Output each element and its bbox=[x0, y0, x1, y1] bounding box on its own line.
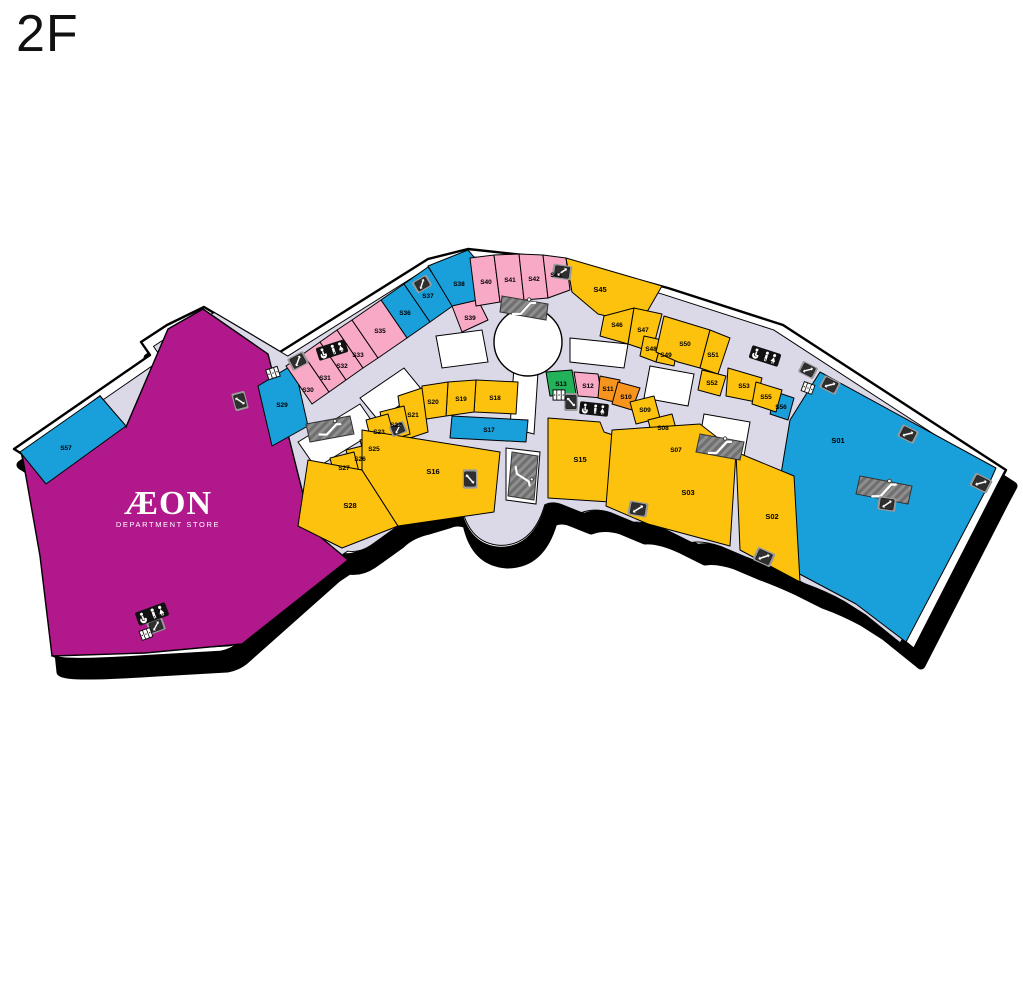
anchor-store-name: ÆON bbox=[124, 485, 212, 522]
center-court bbox=[494, 308, 562, 376]
escalator-icon bbox=[508, 452, 538, 500]
elevator-icon bbox=[463, 469, 477, 488]
unit-s19[interactable] bbox=[446, 380, 476, 416]
elevator-icon bbox=[564, 393, 578, 411]
anchor-store-subtitle: DEPARTMENT STORE bbox=[116, 520, 220, 529]
lockers-icon bbox=[553, 390, 565, 400]
floor-map: ÆON DEPARTMENT STORE bbox=[0, 0, 1023, 1000]
vacant-unit bbox=[436, 330, 488, 368]
unit-s12[interactable] bbox=[574, 372, 602, 398]
mall-floor-map-page: 2F bbox=[0, 0, 1023, 1000]
elevator-icon bbox=[551, 264, 572, 281]
unit-s17[interactable] bbox=[450, 416, 528, 442]
elevator-icon bbox=[877, 496, 897, 512]
unit-s18[interactable] bbox=[474, 380, 518, 414]
